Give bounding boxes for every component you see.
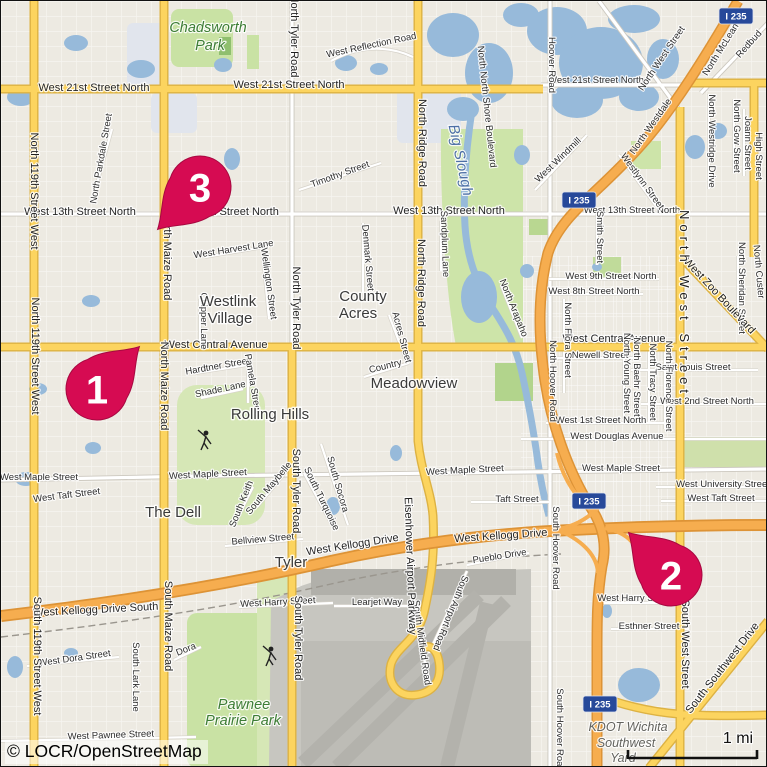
interstate-shield: I 235 — [583, 696, 617, 712]
map-label: North West Street — [677, 210, 692, 398]
map-label: Joann Street — [742, 116, 753, 170]
map-label: North Tyler Road — [290, 267, 302, 350]
interstate-shield: I 235 — [572, 493, 606, 509]
marker-number: 1 — [86, 368, 108, 412]
map-label: Hoover Road — [546, 37, 557, 93]
map-label: North Florence Street — [663, 341, 674, 432]
map-label: South Tyler Road — [290, 449, 302, 534]
map-label: Prairie Park — [205, 713, 281, 729]
svg-text:I 235: I 235 — [725, 12, 747, 23]
svg-text:I 235: I 235 — [589, 700, 611, 711]
map-label: Newell Street — [572, 350, 629, 361]
map-label: Esthner Street — [619, 621, 680, 632]
map-label: West Taft Street — [687, 493, 755, 504]
map-canvas[interactable]: West 21st Street NorthWest 21st Street N… — [0, 0, 767, 767]
svg-text:I 235: I 235 — [568, 196, 590, 207]
map-label: Learjet Way — [352, 597, 403, 608]
map-attribution: © LOCR/OpenStreetMap — [5, 740, 208, 764]
map-label: West Maple Street — [582, 463, 660, 474]
map-label: Park — [195, 38, 226, 54]
map-label: Westlink — [200, 293, 257, 310]
map-label: North Gow Street — [731, 99, 742, 173]
map-label: South Lark Lane — [130, 642, 141, 712]
map-label: West 21st Street North — [548, 75, 644, 86]
map-label: North Young Street — [621, 333, 632, 414]
interstate-shield: I 235 — [719, 8, 753, 24]
map-label: North Tyler Road — [288, 1, 300, 77]
map-label: West University Street — [676, 479, 767, 490]
map-label: South 119th Street West — [31, 597, 43, 716]
map-label: South West Street — [679, 599, 691, 688]
map-label: North Hoover Road — [547, 340, 558, 422]
map-label: North Flora Street — [562, 302, 573, 378]
map-label: North Maize Road — [158, 342, 170, 431]
map-label: South Maize Road — [162, 581, 174, 672]
marker-number: 3 — [189, 166, 211, 210]
marker-number: 2 — [660, 554, 682, 598]
map-label: Pawnee — [218, 697, 270, 713]
map-label: West 1st Street North — [556, 415, 647, 426]
map-label: South Hoover Road — [550, 506, 561, 589]
map-label: Village — [208, 310, 253, 327]
map-label: Rolling Hills — [231, 406, 309, 423]
map-label: North 119th Street West — [28, 133, 40, 250]
svg-text:I 235: I 235 — [578, 497, 600, 508]
map-label: KDOT Wichita — [588, 720, 667, 734]
map-label: County — [339, 288, 387, 305]
map-label: West 8th Street North — [548, 286, 639, 297]
map-label: Southwest — [597, 736, 656, 750]
map-label: Sandplum Lane — [438, 210, 451, 277]
map-label: South Hoover Road — [554, 688, 565, 767]
map-label: North 119th Street West — [29, 298, 41, 415]
map-label: North Ridge Road — [415, 239, 427, 327]
map-label: North Westridge Drive — [706, 94, 717, 187]
map-label: West 21st Street North — [38, 82, 149, 94]
map-label: North Tracy Street — [647, 343, 658, 420]
map-label: Taft Street — [495, 494, 539, 505]
map-label: The Dell — [145, 504, 201, 521]
map-label: West Douglas Avenue — [570, 431, 663, 442]
interstate-shield: I 235 — [562, 192, 596, 208]
map-label: North Baehr Street — [631, 337, 642, 417]
map-label: Meadowview — [371, 375, 458, 392]
map-label: West Maple Street — [1, 472, 78, 483]
map-label: Chadsworth — [169, 20, 246, 36]
map-svg[interactable]: West 21st Street NorthWest 21st Street N… — [1, 1, 767, 767]
map-label: West 9th Street North — [565, 271, 656, 282]
map-label: West 21st Street North — [233, 79, 344, 91]
map-label: North Ridge Road — [416, 99, 428, 187]
map-label: South Tyler Road — [292, 596, 304, 681]
map-label: High Street — [753, 132, 764, 180]
map-label: Smith Street — [594, 211, 605, 264]
map-label: Acres — [339, 305, 377, 322]
scale-label: 1 mi — [723, 730, 753, 747]
map-label: West Central Avenue — [165, 339, 268, 351]
map-label: Tyler — [275, 554, 308, 571]
